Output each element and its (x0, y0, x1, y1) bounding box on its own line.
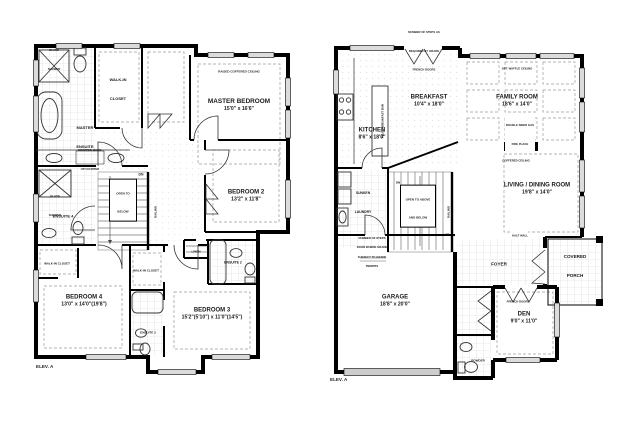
half-wall-label: HALF WALL (512, 224, 528, 243)
door-grade-note: DOOR WHERE GRADE PERMITS (355, 235, 389, 273)
closet-outline2 (148, 52, 184, 122)
porch-post (596, 236, 603, 243)
master-coffered-ceiling-outline (198, 64, 280, 164)
dn-label-main: DN (396, 171, 400, 190)
garage-label: GARAGE 18'8" x 20'0" (380, 294, 410, 307)
elevation-label-main: ELEV. A (330, 377, 347, 382)
french-doors-label-den: FRENCH DOORS (507, 290, 530, 309)
flush-breakfast-bar-label: FLUSH BREAKFAST BAR (371, 104, 390, 138)
porch-post (596, 299, 603, 306)
sunken-laundry-label: SUNKEN LAUNDRY (348, 181, 378, 219)
breakfast-label: BREAKFAST 10'4" x 18'0" (411, 94, 448, 107)
glass-shower-label: GLASS SHOWER (43, 38, 65, 76)
ensuite4-label: ENSUITE 4 (53, 205, 74, 224)
coffered-ceiling-note: COFFERED CEILING (502, 149, 530, 168)
family-room-label: FAMILY ROOM 18'6" x 14'0" (496, 94, 538, 107)
french-doors-label-top: FRENCH DOORS (413, 58, 436, 77)
foyer-label: FOYER (491, 253, 507, 272)
waffle-ceiling-note: OPT. WAFFLE CEILING (502, 57, 533, 76)
steps-grade-note-top: NUMBER OF STEPS AS REQUIRED BY GRADE (403, 20, 445, 58)
master-bedroom-label: MASTER BEDROOM 15'0" x 16'6" (208, 98, 270, 112)
makeup-counter-label: DROPPED MAKE-UP COUNTER (78, 138, 102, 176)
living-dining-label: LIVING / DINING ROOM 19'8" x 14'0" (504, 182, 570, 195)
linen-label: LINEN (192, 240, 201, 259)
ensuite2-label: ENSUITE 2 (224, 251, 242, 270)
walk-in-closet-bedroom4-label: WALK-IN CLOSET (43, 252, 71, 271)
open-to-below-label: OPEN TO BELOW (109, 179, 137, 222)
floor-plan-page: RAISED COFFERED CEILING MASTER BEDROOM 1… (0, 0, 639, 426)
garage-door (344, 369, 440, 376)
closet-doors (148, 114, 172, 128)
bedroom4-label: BEDROOM 4 13'0" x 14'0"(19'8") (61, 294, 106, 307)
railing-label-main: RAILING (437, 206, 456, 218)
up-label-main: UP (445, 223, 449, 242)
dn-label-second: DN (139, 163, 144, 182)
bedroom3-label: BEDROOM 3 15'2"(5'10") x 11'0"(14'5") (182, 307, 243, 320)
master-ceiling-note: RAISED COFFERED CEILING (218, 60, 260, 79)
ensuite3-label: ENSUITE 3 (140, 321, 156, 340)
bedroom2-closet-doors (206, 184, 218, 214)
open-to-above-below-label: OPEN TO ABOVE AND BELOW (400, 185, 436, 228)
railing-label-second: RAILING (144, 206, 163, 218)
walk-in-closet-bedroom3-label: WALK-IN CLOSET (132, 259, 160, 278)
powder-label: POWDER (471, 349, 485, 368)
den-label: DEN 9'0" x 11'0" (511, 311, 538, 324)
covered-porch-label: COVERED PORCH (557, 245, 593, 283)
floor-plan-drawing (0, 0, 639, 426)
walk-in-closet-master-label: WALK-IN CLOSET (102, 68, 134, 106)
bedroom2-broadloom (213, 150, 279, 222)
elevation-label-second: ELEV. A (36, 364, 53, 369)
bedroom2-label: BEDROOM 2 13'2" x 11'8" (228, 189, 264, 202)
fireplace-note: DOUBLE SIDED GAS FIRE PLACE (505, 113, 535, 151)
